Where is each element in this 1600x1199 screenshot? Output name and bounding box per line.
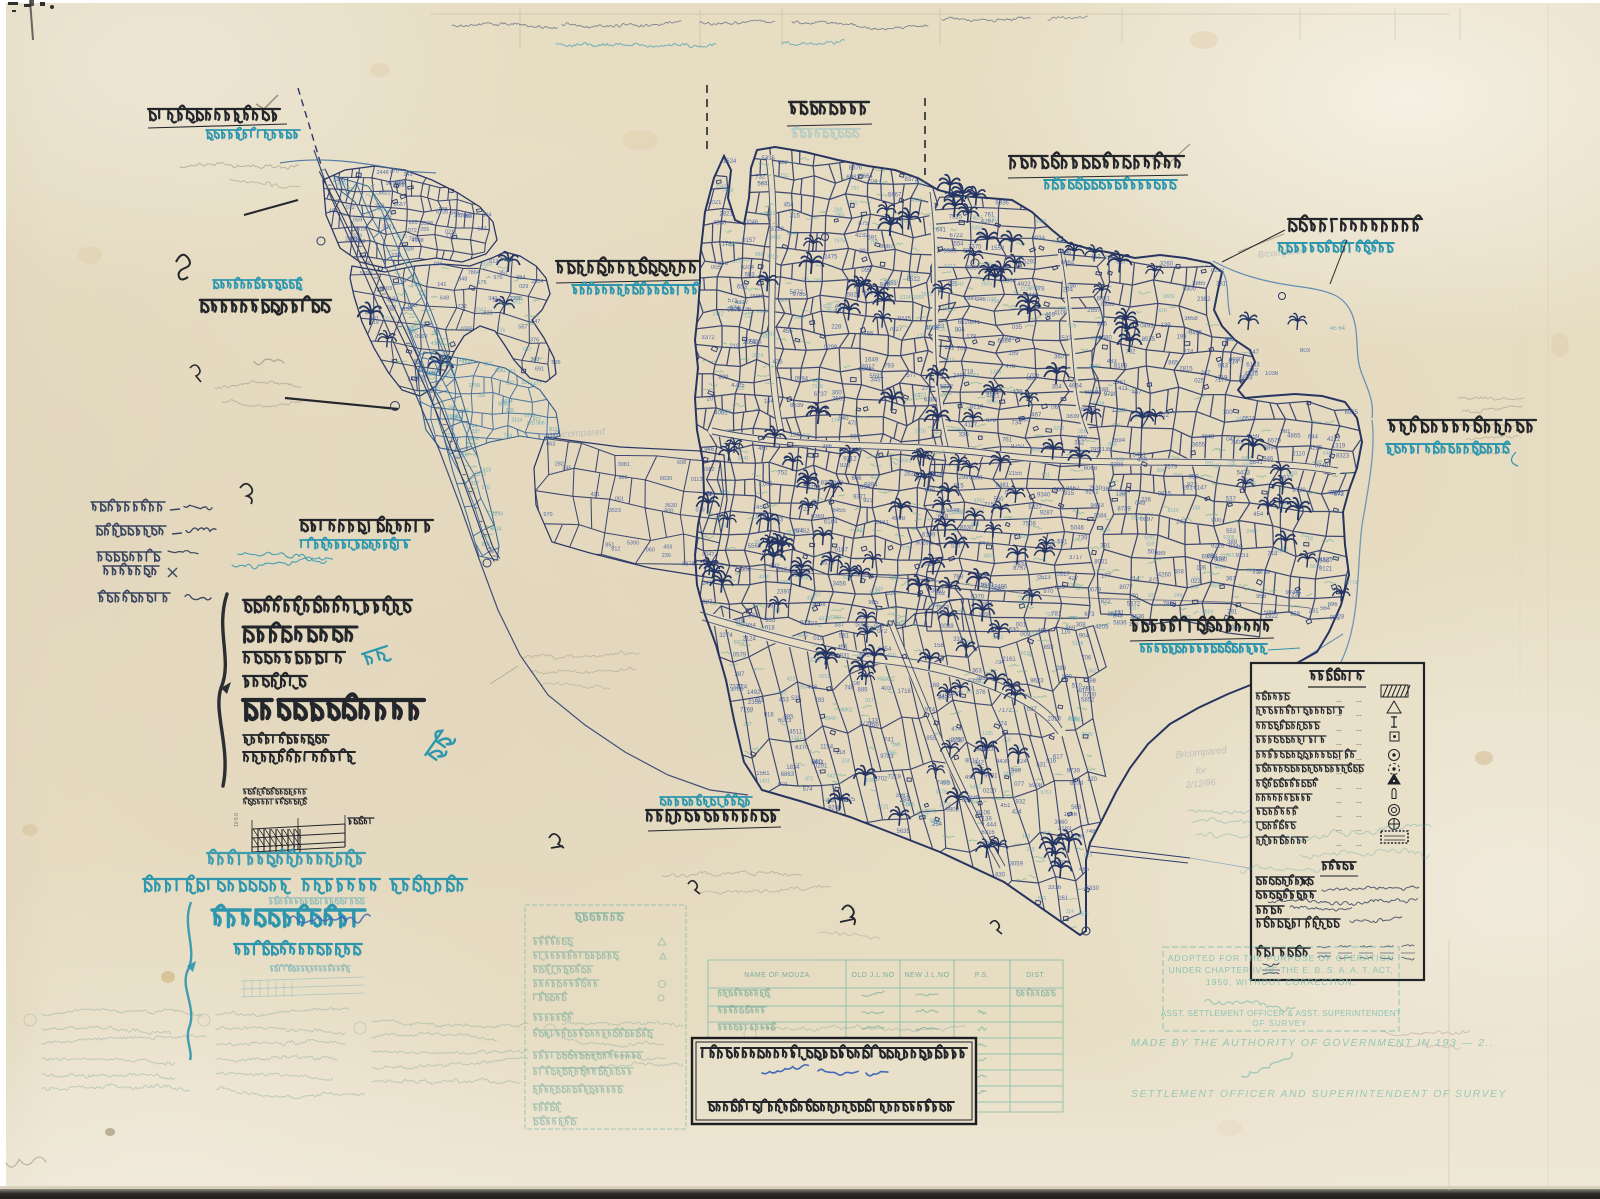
svg-text:653: 653 (737, 284, 748, 290)
svg-text:6579: 6579 (1268, 439, 1282, 445)
svg-text:641: 641 (936, 228, 947, 234)
svg-text:174: 174 (831, 418, 840, 424)
svg-text:086: 086 (461, 409, 470, 415)
svg-text:6189: 6189 (922, 532, 936, 538)
svg-text:845: 845 (1097, 321, 1108, 327)
svg-text:8185: 8185 (1114, 364, 1128, 370)
svg-text:283: 283 (798, 684, 807, 690)
svg-text:3012: 3012 (862, 365, 876, 371)
svg-text:298: 298 (939, 385, 948, 391)
svg-text:0774: 0774 (940, 802, 951, 808)
svg-text:5444: 5444 (787, 231, 798, 237)
svg-text:696: 696 (889, 576, 898, 582)
svg-text:9936: 9936 (995, 200, 1009, 206)
svg-text:0385: 0385 (461, 326, 473, 332)
svg-text:3582: 3582 (481, 262, 492, 268)
svg-text:564: 564 (757, 182, 768, 188)
svg-text:0251: 0251 (1331, 491, 1345, 497)
svg-text:1387: 1387 (791, 735, 802, 741)
svg-text:4330: 4330 (713, 220, 727, 226)
svg-text:DIST.: DIST. (1026, 972, 1046, 979)
svg-text:9229: 9229 (1211, 544, 1225, 550)
svg-text:781: 781 (427, 371, 436, 377)
svg-text:7579: 7579 (1164, 465, 1178, 471)
svg-text:...: ... (1356, 726, 1362, 733)
svg-text:9623: 9623 (1030, 679, 1044, 685)
svg-text:864: 864 (1089, 364, 1098, 370)
svg-text:882: 882 (410, 325, 419, 331)
svg-text:420: 420 (807, 596, 816, 602)
svg-text:114: 114 (1066, 909, 1074, 915)
svg-text:562: 562 (1089, 669, 1098, 675)
svg-text:943: 943 (1218, 364, 1229, 370)
svg-text:1524: 1524 (723, 159, 737, 165)
svg-text:6157: 6157 (918, 813, 929, 819)
svg-text:6929: 6929 (1242, 456, 1253, 462)
svg-text:581: 581 (1057, 540, 1068, 546)
svg-text:177: 177 (1101, 573, 1112, 579)
svg-text:4147: 4147 (1194, 485, 1208, 491)
svg-text:1716: 1716 (898, 689, 912, 695)
svg-text:8001: 8001 (1094, 559, 1108, 565)
svg-text:247: 247 (743, 722, 752, 728)
svg-text:SETTLEMENT OFFICER AND SUPER: SETTLEMENT OFFICER AND SUPERINTENDENT OF… (1131, 1088, 1507, 1100)
svg-text:888: 888 (755, 252, 764, 258)
svg-text:454: 454 (784, 203, 795, 209)
svg-text:803: 803 (1300, 348, 1311, 354)
svg-text:035: 035 (1005, 336, 1016, 342)
svg-text:3055: 3055 (886, 751, 897, 757)
svg-text:2161: 2161 (1002, 657, 1016, 663)
svg-text:...: ... (1336, 798, 1342, 805)
svg-text:641: 641 (970, 320, 981, 326)
svg-text:...: ... (1336, 697, 1342, 704)
svg-text:8369: 8369 (866, 778, 877, 784)
svg-text:181: 181 (813, 278, 822, 284)
svg-text:6136: 6136 (738, 307, 752, 313)
svg-text:092: 092 (769, 564, 780, 570)
svg-text:5852: 5852 (1081, 698, 1095, 704)
svg-text:315: 315 (790, 214, 801, 220)
svg-text:6364: 6364 (902, 802, 913, 808)
svg-text:078: 078 (986, 418, 997, 424)
svg-text:9443: 9443 (1091, 503, 1105, 509)
svg-text:1105: 1105 (982, 731, 993, 737)
svg-text:9300: 9300 (1183, 287, 1197, 293)
svg-text:5866: 5866 (1264, 610, 1278, 616)
svg-text:0187: 0187 (835, 548, 849, 554)
svg-text:946: 946 (704, 447, 715, 453)
svg-text:3528: 3528 (421, 221, 433, 227)
svg-text:425: 425 (736, 386, 745, 392)
svg-text:812: 812 (549, 427, 558, 433)
svg-text:...: ... (1356, 711, 1362, 718)
svg-text:0994: 0994 (795, 376, 809, 382)
svg-text:5635: 5635 (897, 829, 911, 835)
svg-text:036: 036 (434, 262, 443, 268)
svg-text:928: 928 (1290, 611, 1301, 617)
svg-text:3042: 3042 (953, 281, 964, 287)
svg-text:9268: 9268 (972, 226, 983, 232)
svg-text:581: 581 (839, 633, 850, 639)
svg-text:10 5 0: 10 5 0 (234, 813, 240, 827)
svg-text:4205: 4205 (1095, 625, 1109, 631)
svg-text:917: 917 (865, 698, 874, 704)
svg-text:239: 239 (662, 553, 671, 559)
svg-text:6737: 6737 (814, 392, 828, 398)
svg-text:4530: 4530 (912, 198, 923, 204)
svg-text:5293: 5293 (1023, 260, 1037, 266)
svg-text:970: 970 (543, 512, 552, 518)
svg-text:250: 250 (477, 393, 486, 399)
svg-text:467: 467 (1031, 412, 1042, 418)
svg-text:8774: 8774 (1346, 581, 1357, 587)
svg-text:2498: 2498 (953, 373, 967, 379)
svg-text:913: 913 (800, 620, 811, 626)
svg-text:6471: 6471 (1019, 600, 1030, 606)
svg-text:6170: 6170 (795, 745, 809, 751)
svg-text:421: 421 (591, 492, 600, 498)
svg-text:2758: 2758 (469, 383, 480, 389)
svg-text:639: 639 (1146, 542, 1155, 548)
svg-text:537: 537 (1226, 496, 1237, 502)
svg-text:2155: 2155 (1009, 471, 1023, 477)
svg-text:095: 095 (861, 268, 872, 274)
svg-text:1099: 1099 (1286, 471, 1297, 477)
svg-text:365: 365 (506, 408, 515, 414)
svg-text:5390: 5390 (627, 540, 639, 546)
svg-text:9467: 9467 (1066, 486, 1080, 492)
svg-text:2543: 2543 (716, 184, 727, 190)
svg-text:594: 594 (969, 800, 978, 806)
svg-text:620: 620 (778, 160, 789, 166)
svg-text:7530: 7530 (786, 530, 797, 536)
svg-text:348: 348 (458, 277, 467, 283)
svg-text:793: 793 (884, 363, 895, 369)
svg-text:337: 337 (834, 623, 845, 629)
svg-text:028: 028 (1274, 548, 1283, 554)
svg-text:0220: 0220 (983, 789, 997, 795)
svg-text:4505: 4505 (1078, 912, 1089, 918)
svg-text:211: 211 (719, 523, 727, 529)
svg-text:0513: 0513 (1037, 575, 1051, 581)
svg-text:923: 923 (863, 498, 874, 504)
svg-text:869: 869 (1077, 435, 1088, 441)
svg-text:2448: 2448 (377, 170, 389, 176)
svg-text:029: 029 (519, 284, 528, 290)
svg-text:5900: 5900 (1060, 306, 1071, 312)
svg-text:...: ... (1336, 726, 1342, 733)
svg-text:2496: 2496 (994, 584, 1008, 590)
svg-text:1492: 1492 (747, 690, 761, 696)
svg-text:9761: 9761 (1041, 790, 1052, 796)
svg-text:485: 485 (1079, 867, 1090, 873)
svg-text:974: 974 (925, 708, 936, 714)
svg-text:4430: 4430 (996, 759, 1010, 765)
svg-text:4212: 4212 (1327, 437, 1341, 443)
svg-text:504: 504 (1148, 550, 1159, 556)
svg-text:416: 416 (497, 328, 506, 334)
svg-text:291: 291 (859, 249, 870, 255)
svg-text:691: 691 (748, 614, 759, 620)
svg-text:087: 087 (523, 347, 532, 353)
svg-text:648: 648 (440, 295, 449, 301)
svg-text:9295: 9295 (1053, 239, 1064, 245)
svg-text:418: 418 (772, 608, 781, 614)
svg-text:413: 413 (871, 475, 880, 481)
svg-text:595: 595 (551, 360, 560, 366)
svg-text:7172: 7172 (998, 708, 1012, 714)
svg-text:4865: 4865 (1287, 433, 1301, 439)
svg-text:408: 408 (1174, 570, 1185, 576)
svg-text:3274: 3274 (719, 633, 733, 639)
svg-text:645: 645 (942, 781, 951, 787)
svg-text:291: 291 (1227, 609, 1238, 615)
svg-text:5879: 5879 (682, 562, 694, 568)
svg-text:072: 072 (408, 228, 417, 234)
svg-text:812: 812 (611, 546, 620, 552)
svg-text:435: 435 (773, 359, 784, 365)
svg-text:865: 865 (1168, 360, 1179, 366)
svg-text:025: 025 (1194, 379, 1205, 385)
svg-text:228: 228 (831, 325, 842, 331)
svg-text:6559: 6559 (1202, 610, 1213, 616)
svg-text:693: 693 (1044, 645, 1055, 651)
svg-text:2584: 2584 (1093, 513, 1107, 519)
svg-text:5659: 5659 (1310, 564, 1321, 570)
svg-text:563: 563 (1071, 805, 1082, 811)
svg-text:5198: 5198 (1072, 641, 1083, 647)
svg-text:274: 274 (922, 386, 933, 392)
svg-text:4464: 4464 (1214, 565, 1225, 571)
svg-text:119: 119 (1213, 464, 1221, 470)
svg-text:3885: 3885 (1003, 771, 1014, 777)
svg-text:3060: 3060 (1054, 820, 1068, 826)
svg-text:9495: 9495 (1189, 330, 1203, 336)
svg-text:461: 461 (945, 345, 956, 351)
svg-text:426: 426 (419, 292, 428, 298)
svg-text:7515: 7515 (396, 234, 407, 240)
svg-text:OLD J.L.NO: OLD J.L.NO (851, 972, 894, 979)
svg-text:ADOPTED FOR THE PURPOSE OF OPE: ADOPTED FOR THE PURPOSE OF OPERATION (1168, 953, 1395, 963)
svg-text:0481: 0481 (996, 483, 1010, 489)
svg-text:2272: 2272 (1053, 426, 1064, 432)
svg-text:3717: 3717 (1069, 555, 1083, 561)
svg-text:8106: 8106 (977, 811, 991, 817)
svg-text:708: 708 (870, 240, 879, 246)
svg-text:8535: 8535 (1142, 337, 1156, 343)
svg-text:371: 371 (1193, 576, 1202, 582)
svg-text:8110: 8110 (1168, 508, 1179, 514)
svg-text:9320: 9320 (1242, 463, 1253, 469)
svg-text:9752: 9752 (1011, 444, 1025, 450)
svg-text:7332: 7332 (729, 684, 743, 690)
svg-text:2382: 2382 (1197, 297, 1211, 303)
svg-text:P.S.: P.S. (975, 972, 989, 979)
svg-text:342: 342 (1074, 441, 1085, 447)
svg-text:...: ... (1336, 784, 1342, 791)
svg-text:644: 644 (1308, 435, 1319, 441)
svg-text:OF SURVEY.: OF SURVEY. (1252, 1019, 1309, 1028)
svg-text:077: 077 (1014, 782, 1025, 788)
svg-text:4702: 4702 (907, 274, 918, 280)
svg-text:114: 114 (1130, 577, 1140, 583)
svg-text:761: 761 (1002, 437, 1013, 443)
svg-text:691: 691 (535, 367, 544, 373)
svg-text:166: 166 (892, 743, 901, 749)
svg-text:6369: 6369 (811, 514, 825, 520)
svg-text:9575: 9575 (826, 308, 837, 314)
svg-text:5731: 5731 (878, 805, 889, 811)
svg-text:704: 704 (867, 179, 878, 185)
svg-text:9991: 9991 (900, 459, 911, 465)
svg-text:5908: 5908 (1029, 783, 1043, 789)
svg-text:...: ... (1356, 826, 1362, 833)
svg-text:706: 706 (1081, 656, 1092, 662)
svg-text:3164: 3164 (794, 315, 805, 321)
svg-text:297: 297 (432, 331, 441, 337)
svg-text:7027: 7027 (889, 327, 903, 333)
svg-text:4382: 4382 (495, 368, 506, 374)
svg-text:5667: 5667 (888, 193, 902, 199)
svg-text:5144: 5144 (466, 424, 477, 430)
svg-text:2821: 2821 (720, 211, 734, 217)
svg-text:9028: 9028 (1021, 651, 1032, 657)
svg-text:1154: 1154 (820, 744, 834, 750)
svg-text:367: 367 (1226, 577, 1237, 583)
svg-text:8576: 8576 (849, 166, 863, 172)
svg-text:3443: 3443 (1236, 417, 1247, 423)
svg-text:6023: 6023 (778, 718, 792, 724)
svg-text:403: 403 (881, 686, 892, 692)
svg-text:141: 141 (437, 282, 446, 288)
svg-text:6858: 6858 (1068, 717, 1079, 723)
svg-text:995: 995 (409, 220, 418, 226)
svg-text:424: 424 (1012, 809, 1023, 815)
svg-text:383: 383 (1102, 487, 1113, 493)
svg-text:304: 304 (1157, 468, 1166, 474)
svg-text:6065: 6065 (968, 373, 979, 379)
svg-text:1559: 1559 (991, 246, 1005, 252)
svg-text:275: 275 (1149, 577, 1160, 583)
svg-text:MADE BY THE AUTHORITY OF GOVER: MADE BY THE AUTHORITY OF GOVERNMENT IN 1… (1131, 1037, 1494, 1049)
svg-text:0883: 0883 (1101, 302, 1115, 308)
svg-text:...: ... (1336, 755, 1342, 762)
svg-text:973: 973 (897, 622, 906, 628)
svg-text:060: 060 (646, 548, 655, 554)
svg-text:478: 478 (1005, 364, 1016, 370)
svg-text:9299: 9299 (824, 345, 838, 351)
svg-text:163: 163 (942, 307, 951, 313)
svg-text:734: 734 (1011, 420, 1022, 426)
svg-text:7269: 7269 (740, 708, 754, 714)
svg-text:072: 072 (346, 205, 355, 211)
svg-text:799: 799 (409, 236, 418, 242)
svg-text:5583: 5583 (498, 402, 509, 408)
svg-text:986: 986 (619, 475, 628, 481)
svg-text:779: 779 (902, 546, 911, 552)
svg-text:929: 929 (875, 586, 884, 592)
svg-text:1532: 1532 (462, 359, 473, 365)
svg-text:4772: 4772 (1117, 408, 1128, 414)
svg-text:106: 106 (1196, 566, 1207, 572)
svg-text:085: 085 (1020, 418, 1031, 424)
svg-text:2624: 2624 (752, 353, 763, 359)
svg-text:2669: 2669 (757, 309, 768, 315)
svg-text:1017: 1017 (1129, 605, 1140, 611)
svg-text:0088: 0088 (751, 294, 765, 300)
svg-text:3607: 3607 (1054, 355, 1068, 361)
svg-text:155: 155 (790, 433, 801, 439)
svg-text:3114: 3114 (511, 418, 522, 424)
svg-text:067: 067 (1051, 405, 1062, 411)
svg-text:335: 335 (765, 618, 776, 624)
svg-text:926: 926 (840, 463, 851, 469)
svg-text:872: 872 (805, 776, 814, 782)
svg-text:0062: 0062 (988, 218, 999, 224)
svg-text:219: 219 (729, 344, 740, 350)
svg-text:561: 561 (507, 369, 516, 375)
svg-text:207: 207 (484, 362, 493, 368)
svg-text:4565: 4565 (720, 409, 731, 415)
svg-text:2557: 2557 (1087, 308, 1101, 314)
svg-text:136: 136 (982, 816, 993, 822)
svg-text:4232: 4232 (855, 233, 869, 239)
svg-text:...: ... (1356, 755, 1362, 762)
svg-text:161: 161 (1058, 896, 1069, 902)
svg-text:875: 875 (858, 221, 869, 227)
svg-text:8237: 8237 (925, 325, 936, 331)
svg-text:324: 324 (841, 759, 850, 765)
svg-text:139: 139 (1161, 323, 1172, 329)
svg-text:889: 889 (858, 688, 869, 694)
svg-text:4588: 4588 (892, 516, 906, 522)
svg-text:1561: 1561 (756, 771, 770, 777)
svg-text:5324: 5324 (900, 295, 911, 301)
svg-text:5836: 5836 (1113, 621, 1127, 627)
svg-text:0608: 0608 (969, 475, 983, 481)
svg-text:7593: 7593 (921, 292, 932, 298)
svg-text:6163: 6163 (887, 279, 898, 285)
svg-text:387: 387 (735, 672, 746, 678)
svg-text:6164: 6164 (824, 520, 838, 526)
svg-text:099: 099 (1116, 457, 1125, 463)
svg-text:2507: 2507 (1017, 534, 1028, 540)
svg-text:3825: 3825 (981, 282, 992, 288)
svg-text:820: 820 (1055, 585, 1066, 591)
svg-text:349: 349 (404, 172, 413, 178)
svg-text:137: 137 (1215, 557, 1226, 563)
svg-text:...: ... (1356, 697, 1362, 704)
svg-text:528: 528 (1068, 324, 1077, 330)
svg-text:8087: 8087 (880, 244, 894, 250)
svg-text:...: ... (1356, 769, 1362, 776)
svg-text:5423: 5423 (1237, 471, 1251, 477)
svg-text:874: 874 (730, 306, 741, 312)
svg-text:956: 956 (1256, 594, 1267, 600)
svg-text:407: 407 (1078, 689, 1089, 695)
svg-text:337: 337 (472, 429, 481, 435)
svg-text:5434: 5434 (491, 527, 502, 533)
svg-text:178: 178 (966, 335, 977, 341)
svg-text:0079: 0079 (1088, 587, 1102, 593)
svg-text:447: 447 (1132, 390, 1143, 396)
svg-text:6487: 6487 (1323, 451, 1334, 457)
svg-text:ASST. SETTLEMENT OFFICER & ASS: ASST. SETTLEMENT OFFICER & ASST. SUPERIN… (1161, 1009, 1401, 1018)
svg-text:120: 120 (1087, 777, 1098, 783)
svg-text:575: 575 (477, 280, 486, 286)
svg-text:112: 112 (1091, 254, 1101, 260)
